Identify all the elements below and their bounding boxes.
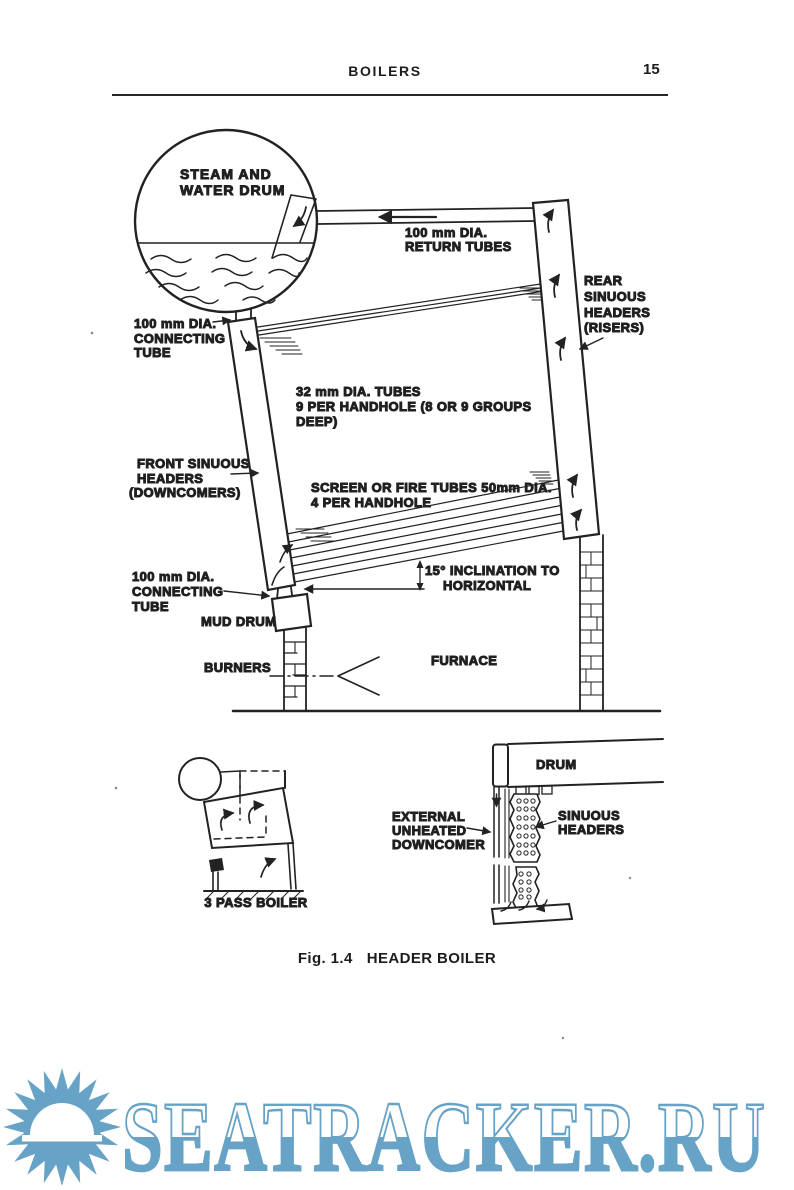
label-three-pass: 3 PASS BOILER: [204, 895, 307, 910]
figure-caption: Fig. 1.4HEADER BOILER: [0, 950, 794, 967]
label-front-2: HEADERS: [137, 471, 203, 486]
label-rear-2: SINUOUS: [584, 289, 646, 304]
label-front-1: FRONT SINUOUS: [137, 456, 250, 471]
label-ext-1: EXTERNAL: [392, 809, 465, 824]
label-conn-top-3: TUBE: [134, 345, 171, 360]
label-rear-3: HEADERS: [584, 305, 650, 320]
mud-drum-shape: [272, 587, 311, 631]
return-tubes: [317, 208, 534, 224]
inset-sinuous-header-detail: DRUM: [392, 739, 663, 924]
label-furnace: FURNACE: [431, 653, 497, 668]
label-incline-2: HORIZONTAL: [443, 578, 531, 593]
label-rear-1: REAR: [584, 273, 623, 288]
rear-brick-pillar: [580, 535, 603, 710]
label-sin-1: SINUOUS: [558, 808, 620, 823]
watermark: SEATRACKER.RU: [0, 1063, 794, 1190]
scan-specks: [91, 332, 632, 1040]
label-drum-2: WATER DRUM: [180, 182, 285, 198]
inclination-annotation: [305, 560, 424, 591]
label-rear-4: (RISERS): [584, 320, 644, 335]
label-gen-tubes-1: 32 mm DIA. TUBES: [296, 384, 421, 399]
label-conn-bot-1: 100 mm DIA.: [132, 569, 214, 584]
label-burners: BURNERS: [204, 660, 271, 675]
label-conn-top-1: 100 mm DIA.: [134, 316, 216, 331]
watermark-site-text: SEATRACKER.RU: [122, 1087, 766, 1187]
front-sinuous-header: [228, 318, 295, 590]
book-page: BOILERS 15: [0, 0, 794, 1190]
label-gen-tubes-3: DEEP): [296, 414, 338, 429]
label-screen-1: SCREEN OR FIRE TUBES 50mm DIA.: [311, 480, 552, 495]
figure-line-art: STEAM AND WATER DRUM 100 mm DIA. RETURN …: [0, 0, 794, 1190]
figure-title: HEADER BOILER: [367, 950, 496, 967]
label-sin-2: HEADERS: [558, 822, 624, 837]
inset-three-pass-boiler: 3 PASS BOILER: [179, 758, 308, 910]
label-mud-drum: MUD DRUM: [201, 614, 276, 629]
label-conn-bot-2: CONNECTING: [132, 584, 223, 599]
label-front-3: (DOWNCOMERS): [129, 485, 241, 500]
generating-tube-bank: [258, 284, 542, 354]
sun-over-sea-icon: [2, 1065, 122, 1189]
label-conn-top-2: CONNECTING: [134, 331, 225, 346]
label-inset-drum: DRUM: [536, 757, 577, 772]
label-return-2: RETURN TUBES: [405, 239, 512, 254]
front-brick-pillar: [284, 627, 306, 710]
label-incline-1: 15° INCLINATION TO: [425, 563, 560, 578]
label-gen-tubes-2: 9 PER HANDHOLE (8 OR 9 GROUPS: [296, 399, 532, 414]
label-ext-3: DOWNCOMER: [392, 837, 485, 852]
label-conn-bot-3: TUBE: [132, 599, 169, 614]
label-return-1: 100 mm DIA.: [405, 225, 487, 240]
figure-number: Fig. 1.4: [298, 950, 353, 967]
label-drum-1: STEAM AND: [180, 166, 272, 182]
steam-water-drum: [135, 130, 317, 322]
label-ext-2: UNHEATED: [392, 823, 466, 838]
label-screen-2: 4 PER HANDHOLE: [311, 495, 431, 510]
